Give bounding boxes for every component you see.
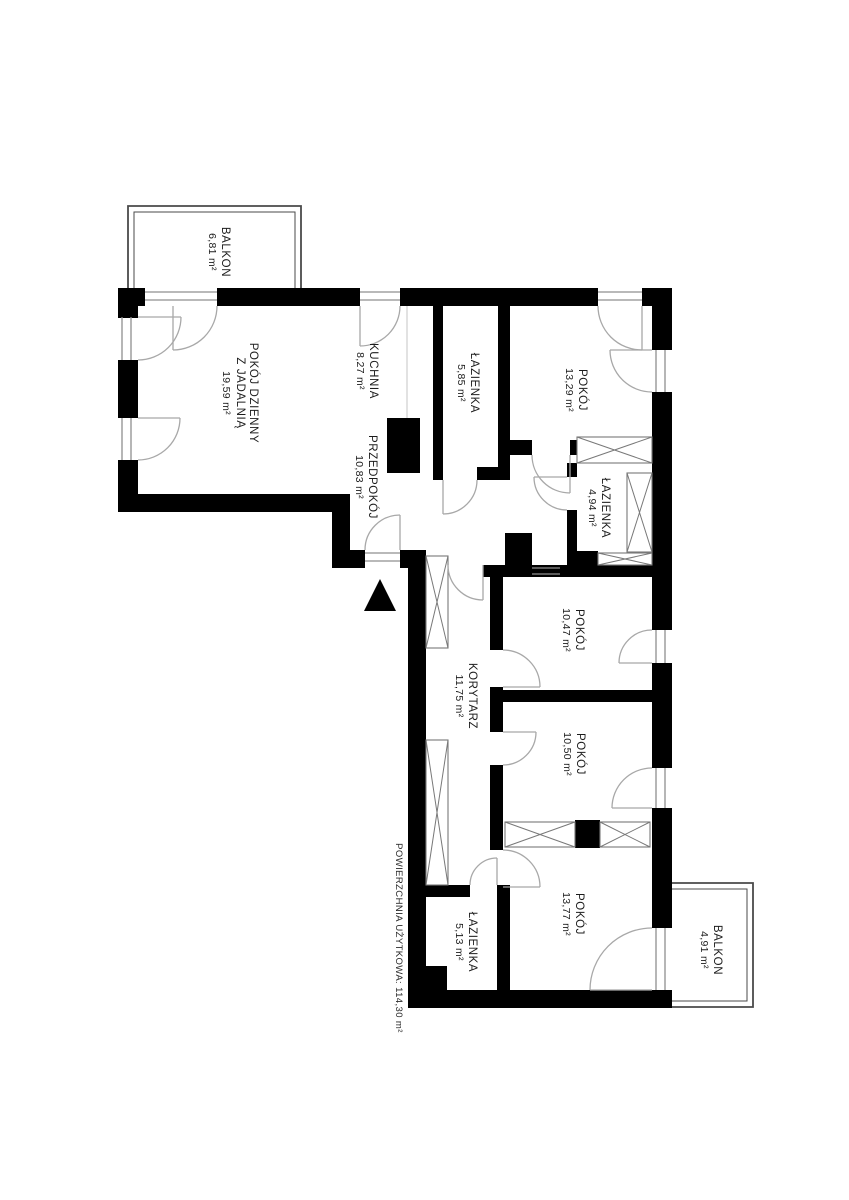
svg-text:4,94 m²: 4,94 m² [586,489,598,527]
room-label-przedpokoj: PRZEDPOKÓJ 10,83 m² [353,435,379,519]
balcony-door-bottom [590,928,652,990]
room-label-pokoj1: POKÓJ 13,29 m² [563,368,589,412]
entrance-door [365,515,400,550]
living-window2-swing [138,418,180,460]
svg-text:13,77 m²: 13,77 m² [560,892,572,936]
room1-right-window-swing [610,350,652,392]
room-label-lazienka2: ŁAZIENKA 4,94 m² [586,478,611,538]
entrance-arrow-marker [364,579,396,611]
svg-text:POKÓJ: POKÓJ [574,733,587,775]
shaft-hatches [426,437,652,885]
svg-text:8,27 m²: 8,27 m² [354,352,366,390]
room-label-lazienka1: ŁAZIENKA 5,85 m² [455,353,480,413]
room-label-balkon-top: BALKON 6,81 m² [206,227,231,277]
bathroom3-door [470,858,497,885]
svg-text:10,83 m²: 10,83 m² [353,455,365,499]
corridor-door [448,565,483,600]
svg-text:10,47 m²: 10,47 m² [560,608,572,652]
room-label-balkon-bottom: BALKON 4,91 m² [698,925,723,975]
svg-text:19,59 m²: 19,59 m² [220,371,232,415]
svg-text:ŁAZIENKA: ŁAZIENKA [466,912,478,972]
room1-top-window-swing [598,306,642,350]
floor-plan-page: BALKON 6,81 m² POKÓJ DZIENNY Z JADALNIĄ … [0,0,849,1200]
svg-text:POWIERZCHNIA UŻYTKOWA: 114,30: POWIERZCHNIA UŻYTKOWA: 114,30 m² [393,843,404,1033]
svg-text:KORYTARZ: KORYTARZ [466,663,478,729]
svg-text:ŁAZIENKA: ŁAZIENKA [599,478,611,538]
room-label-korytarz: KORYTARZ 11,75 m² [453,663,478,729]
svg-text:5,13 m²: 5,13 m² [453,923,465,961]
room-label-pokoj4: POKÓJ 13,77 m² [560,892,586,936]
room-label-kuchnia: KUCHNIA 8,27 m² [354,343,379,399]
room3-window-swing [612,768,652,808]
svg-text:POKÓJ: POKÓJ [573,609,586,651]
svg-text:POKÓJ: POKÓJ [573,893,586,935]
svg-text:ŁAZIENKA: ŁAZIENKA [468,353,480,413]
room-label-pokoj3: POKÓJ 10,50 m² [561,732,587,776]
room-label-lazienka3: ŁAZIENKA 5,13 m² [453,912,478,972]
svg-text:13,29 m²: 13,29 m² [563,368,575,412]
living-window1-swing [138,317,181,360]
room-label-living: POKÓJ DZIENNY Z JADALNIĄ 19,59 m² [220,343,260,443]
room3-door [503,732,536,765]
svg-text:POKÓJ: POKÓJ [576,369,589,411]
svg-text:11,75 m²: 11,75 m² [453,674,465,717]
svg-text:6,81 m²: 6,81 m² [206,233,218,271]
svg-text:KUCHNIA: KUCHNIA [367,343,379,399]
bathroom1-door [443,480,477,514]
svg-text:4,91 m²: 4,91 m² [698,931,710,969]
total-area-label: POWIERZCHNIA UŻYTKOWA: 114,30 m² [393,843,404,1033]
svg-text:10,50 m²: 10,50 m² [561,732,573,776]
svg-text:POKÓJ DZIENNY: POKÓJ DZIENNY [247,343,260,443]
svg-text:Z JADALNIĄ: Z JADALNIĄ [234,357,246,428]
room4-door [503,850,540,887]
floor-plan-drawing: BALKON 6,81 m² POKÓJ DZIENNY Z JADALNIĄ … [0,0,849,1200]
svg-text:BALKON: BALKON [711,925,723,975]
svg-text:PRZEDPOKÓJ: PRZEDPOKÓJ [366,435,379,519]
room2-window-swing [619,630,652,663]
room1-door [532,455,570,493]
kitchen-window-swing [360,306,400,346]
room2-door [503,650,540,687]
svg-text:BALKON: BALKON [219,227,231,277]
bathroom2-door [534,477,567,510]
room-label-pokoj2: POKÓJ 10,47 m² [560,608,586,652]
room-labels: BALKON 6,81 m² POKÓJ DZIENNY Z JADALNIĄ … [206,227,723,1033]
svg-text:5,85 m²: 5,85 m² [455,364,467,402]
